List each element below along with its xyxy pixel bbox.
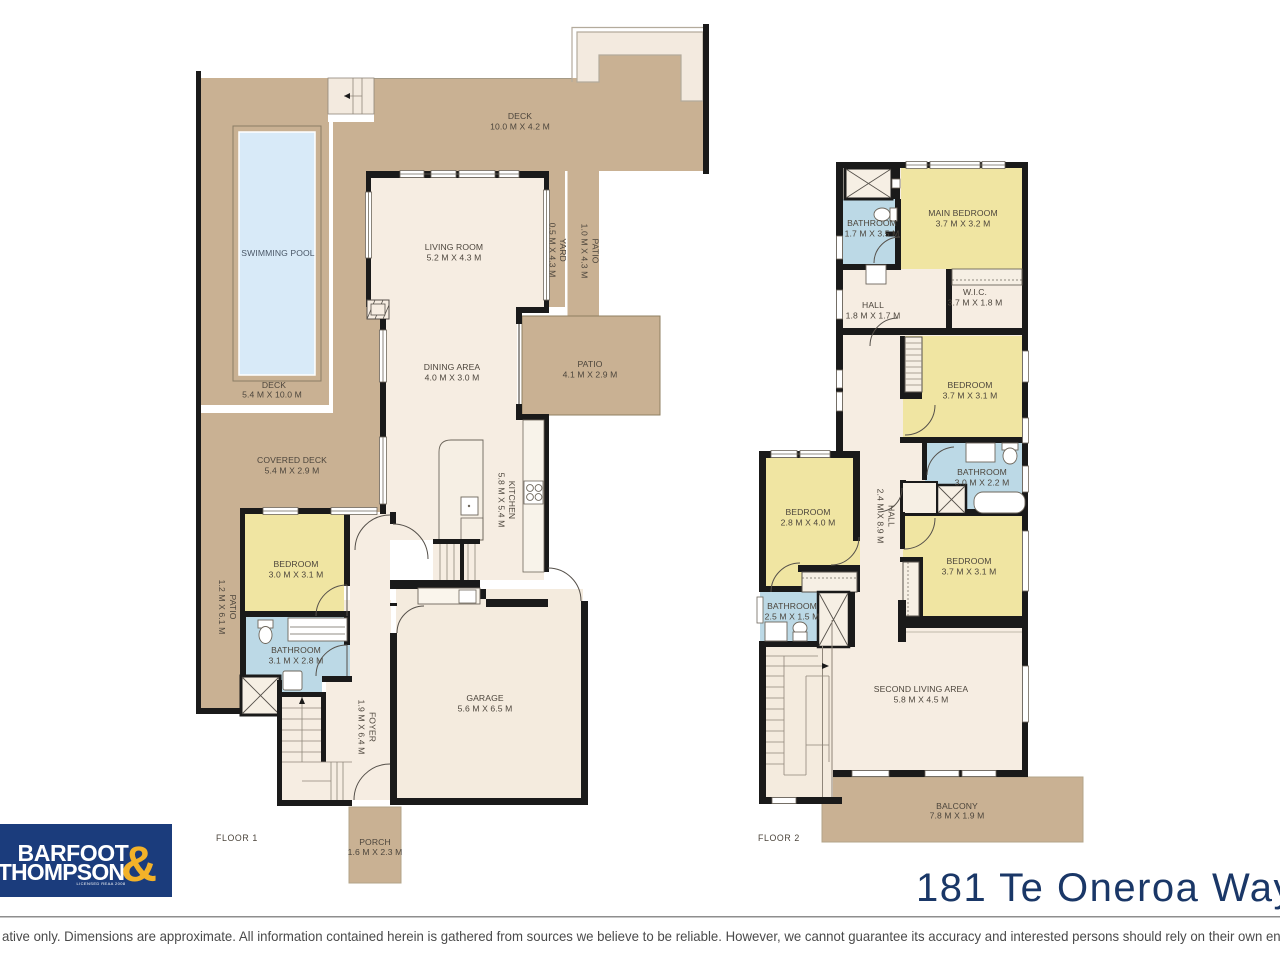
svg-text:PATIO: PATIO (228, 594, 238, 619)
svg-text:1.0 M X 4.3 M: 1.0 M X 4.3 M (580, 224, 590, 279)
svg-text:BEDROOM: BEDROOM (946, 556, 991, 566)
svg-text:BEDROOM: BEDROOM (273, 559, 318, 569)
svg-text:7.8 M X 1.9 M: 7.8 M X 1.9 M (930, 811, 985, 821)
svg-text:PORCH: PORCH (359, 837, 391, 847)
svg-text:SWIMMING POOL: SWIMMING POOL (241, 248, 315, 258)
svg-text:HALL: HALL (862, 300, 884, 310)
svg-text:FLOOR 2: FLOOR 2 (758, 833, 800, 843)
svg-text:KITCHEN: KITCHEN (507, 481, 517, 519)
svg-text:5.4 M X 2.9 M: 5.4 M X 2.9 M (265, 466, 320, 476)
svg-text:5.4 M X 10.0 M: 5.4 M X 10.0 M (242, 390, 302, 400)
svg-text:3.0 M X 2.2 M: 3.0 M X 2.2 M (955, 478, 1010, 488)
svg-text:DINING AREA: DINING AREA (424, 362, 481, 372)
svg-text:LICENSED REAA 2008: LICENSED REAA 2008 (77, 881, 126, 886)
svg-text:2.4 M X 8.9 M: 2.4 M X 8.9 M (876, 489, 886, 544)
svg-text:GARAGE: GARAGE (466, 693, 504, 703)
svg-text:4.0 M X 3.0 M: 4.0 M X 3.0 M (425, 373, 480, 383)
svg-text:3.7 M X 3.1 M: 3.7 M X 3.1 M (943, 391, 998, 401)
svg-text:MAIN BEDROOM: MAIN BEDROOM (928, 208, 997, 218)
svg-text:FLOOR 1: FLOOR 1 (216, 833, 258, 843)
svg-text:3.7 M X 3.1 M: 3.7 M X 3.1 M (942, 567, 997, 577)
svg-text:BATHROOM: BATHROOM (767, 601, 817, 611)
svg-text:COVERED DECK: COVERED DECK (257, 455, 327, 465)
svg-text:PATIO: PATIO (591, 238, 601, 263)
svg-text:10.0 M X 4.2 M: 10.0 M X 4.2 M (490, 122, 550, 132)
svg-text:DECK: DECK (508, 111, 532, 121)
svg-text:W.I.C.: W.I.C. (963, 287, 987, 297)
svg-text:5.8 M X 5.4 M: 5.8 M X 5.4 M (497, 473, 507, 528)
svg-text:2.5 M X 1.5 M: 2.5 M X 1.5 M (765, 612, 820, 622)
svg-text:3.7 M X 3.2 M: 3.7 M X 3.2 M (936, 219, 991, 229)
svg-text:YARD: YARD (558, 238, 568, 262)
svg-text:4.1 M X 2.9 M: 4.1 M X 2.9 M (563, 370, 618, 380)
svg-text:FOYER: FOYER (368, 712, 378, 742)
svg-text:PATIO: PATIO (577, 359, 602, 369)
svg-text:BATHROOM: BATHROOM (847, 218, 897, 228)
svg-text:1.8 M X 1.7 M: 1.8 M X 1.7 M (846, 311, 901, 321)
svg-text:BATHROOM: BATHROOM (271, 645, 321, 655)
svg-text:3.1 M X 2.8 M: 3.1 M X 2.8 M (269, 656, 324, 666)
svg-text:BEDROOM: BEDROOM (785, 507, 830, 517)
svg-text:BEDROOM: BEDROOM (947, 380, 992, 390)
svg-text:&: & (121, 836, 157, 892)
svg-text:5.2 M X 4.3 M: 5.2 M X 4.3 M (427, 253, 482, 263)
svg-text:BATHROOM: BATHROOM (957, 467, 1007, 477)
svg-text:3.7 M X 1.8 M: 3.7 M X 1.8 M (948, 298, 1003, 308)
svg-text:5.6 M X 6.5 M: 5.6 M X 6.5 M (458, 704, 513, 714)
svg-text:181 Te Oneroa Way: 181 Te Oneroa Way (916, 866, 1280, 910)
svg-text:3.0 M X 3.1 M: 3.0 M X 3.1 M (269, 570, 324, 580)
svg-text:LIVING ROOM: LIVING ROOM (425, 242, 483, 252)
svg-text:2.8 M X 4.0 M: 2.8 M X 4.0 M (781, 518, 836, 528)
svg-text:ative only. Dimensions are app: ative only. Dimensions are approximate. … (2, 928, 1280, 944)
svg-text:SECOND LIVING AREA: SECOND LIVING AREA (874, 684, 969, 694)
svg-text:1.2 M X 6.1 M: 1.2 M X 6.1 M (217, 580, 227, 635)
svg-text:DECK: DECK (262, 380, 286, 390)
svg-text:0.5 M X 4.3 M: 0.5 M X 4.3 M (548, 223, 558, 278)
svg-text:BALCONY: BALCONY (936, 801, 978, 811)
svg-text:1.7 M X 3.5 M: 1.7 M X 3.5 M (845, 229, 900, 239)
svg-text:1.6 M X 2.3 M: 1.6 M X 2.3 M (348, 847, 403, 857)
svg-text:5.8 M X 4.5 M: 5.8 M X 4.5 M (894, 695, 949, 705)
svg-text:1.9 M X 6.4 M: 1.9 M X 6.4 M (357, 700, 367, 755)
svg-text:HALL: HALL (887, 505, 897, 527)
